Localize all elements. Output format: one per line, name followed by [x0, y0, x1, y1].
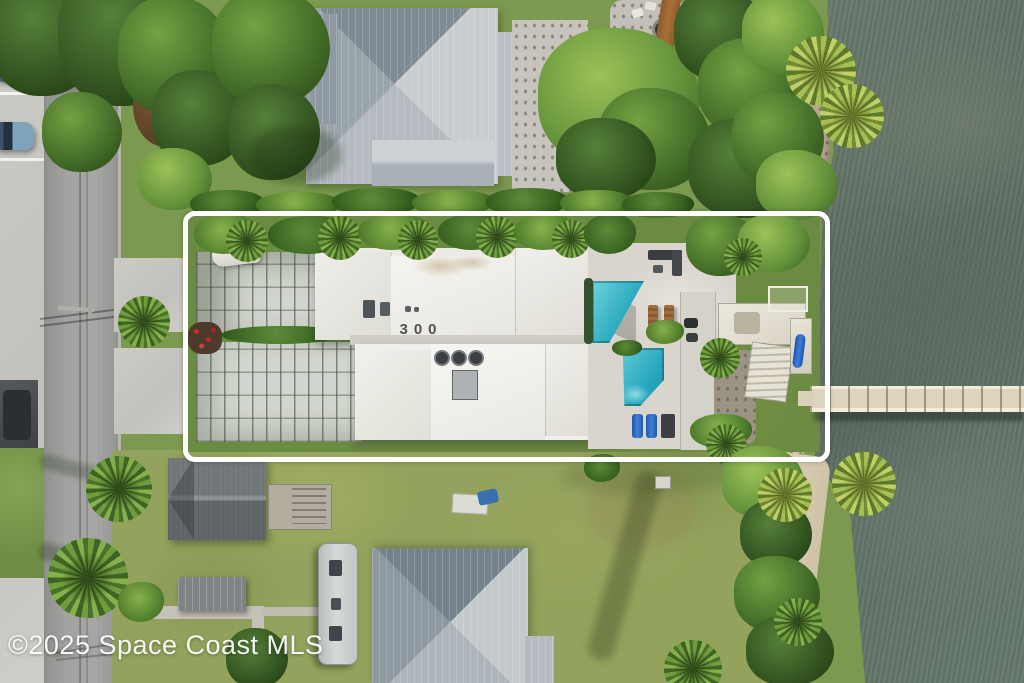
driveway-apron	[114, 348, 188, 434]
parking-area	[0, 0, 48, 683]
stair-treads	[292, 488, 326, 524]
parked-car	[0, 122, 34, 150]
paver-slab	[655, 476, 671, 489]
vehicle-under-carport	[3, 390, 31, 440]
rv-roof-vent	[329, 626, 342, 641]
palm-tree	[48, 538, 128, 618]
tree-shadow	[250, 126, 342, 184]
neighbor-house-roof-south-large	[372, 548, 528, 683]
utility-pole-crossarm	[88, 298, 92, 318]
rv-roof-vent	[329, 560, 342, 576]
palm-tree	[774, 598, 822, 646]
concrete-path	[262, 607, 320, 616]
rv-roof-vent	[331, 598, 341, 610]
patio-chair	[644, 1, 656, 11]
palm-tree	[86, 456, 152, 522]
palm-tree	[820, 84, 884, 148]
tree	[556, 118, 656, 200]
palm-tree	[118, 296, 170, 348]
covered-boat	[208, 583, 260, 605]
aerial-photo: 300	[0, 0, 1024, 683]
grass-patch-left	[0, 448, 46, 578]
tree	[756, 150, 838, 220]
palm-tree	[832, 452, 896, 516]
watermark: ©2025 Space Coast MLS	[8, 630, 324, 661]
parking-line	[0, 158, 46, 161]
roof-wing	[524, 636, 554, 683]
dock	[810, 386, 1024, 412]
property-boundary-outline	[183, 211, 830, 462]
tree	[42, 92, 122, 172]
porch-roof	[372, 140, 494, 186]
palm-tree	[758, 468, 812, 522]
